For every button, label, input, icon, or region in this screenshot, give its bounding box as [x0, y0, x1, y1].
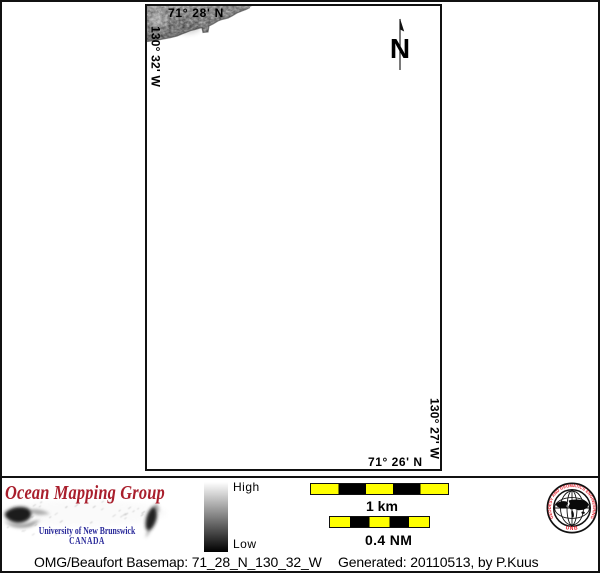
svg-text:UNB: UNB: [565, 525, 579, 532]
